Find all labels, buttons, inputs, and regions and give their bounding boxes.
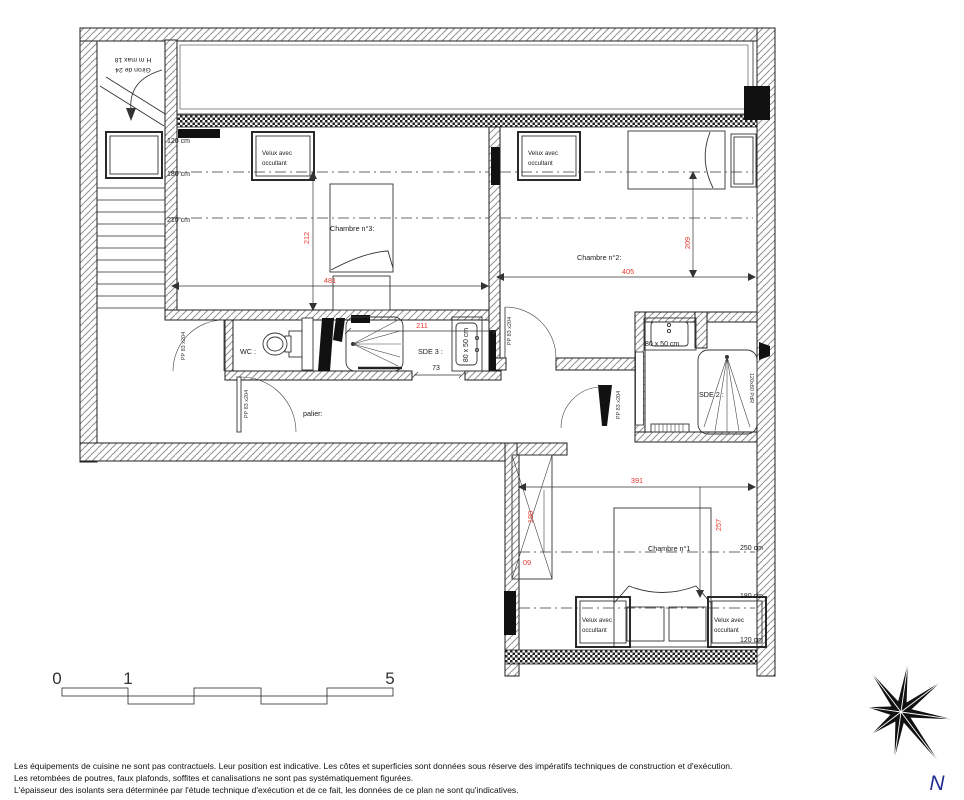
redacted-label-sde3 [351,315,370,323]
wall-sde2-basin-divider [695,312,707,348]
redacted-label [178,129,220,138]
stair-window [106,132,162,178]
compass-facets [867,664,952,763]
dim-closet-width: 60 [523,558,531,567]
room-label-bedroom2: Chambre n°2: [577,253,621,262]
stair-walk-line [131,70,162,110]
scale-tick-5: 5 [385,669,394,688]
door-label-vestibule: PP 83 x204 [181,332,187,360]
wc-toilet [263,331,302,357]
velux-label: Velux avec [262,150,292,157]
height-label-top-210: 210 cm [167,217,190,224]
dim-shower-door: 73 [432,365,440,372]
wall-wc-left [225,320,233,371]
stair-giron-label: Giron de 24 [115,66,151,73]
duct-bedroom1 [504,591,516,635]
room-label-bedroom1: Chambre n°1 [648,544,690,553]
velux-label: Velux avec [582,617,612,624]
floor-plan-page: Giron de 24 H m max 18 [0,0,964,800]
dim-bedroom3-height: 212 [302,232,311,244]
compass-rose: N [867,664,952,796]
scale-tick-1: 1 [123,669,132,688]
sde3-shower [346,317,403,371]
scale-bar: 0 1 5 [52,669,394,704]
room-label-sde2: SDE 2 : [699,390,724,399]
wall-insulated-bottom [505,650,757,664]
height-label-c1-120: 120 cm [740,637,763,644]
stair-walk-arrow [126,108,136,121]
compass-north-label: N [929,772,945,795]
basin-label-sde2: 80 x 50 cm [645,341,679,348]
height-label-c1-250: 250 cm [740,545,763,552]
velux-label: occultant [714,627,739,634]
height-label-top-180: 180 cm [167,171,190,178]
velux-bedroom2: Velux avec occultant [518,132,580,180]
sliding-door-sde3 [489,330,496,370]
stair-treads [97,188,165,308]
door-pocket-sde2 [636,352,644,425]
wall-bath-bottom-a [225,371,412,380]
bedroom1-bed [614,508,711,647]
door-label-landing: PP 83 x204 [244,390,250,418]
sliding-door-bedroom2 [491,147,500,185]
staircase: Giron de 24 H m max 18 [97,56,170,308]
footer-disclaimer: Les équipements de cuisine ne sont pas c… [14,761,732,795]
velux-label: occultant [262,160,287,167]
wall-outer-bottom-left [80,443,517,461]
sde2-towel-rail [651,424,689,432]
doors [173,307,612,432]
bedroom3-bed [330,184,393,310]
wall-outer-top [80,28,775,41]
wall-sde2-bottom [635,432,757,442]
floor-plan-drawing: Giron de 24 H m max 18 [0,0,964,800]
dim-bedroom1-height: 257 [714,519,723,531]
wall-bath-bottom-b [465,371,501,380]
velux-label: occultant [528,160,553,167]
roof-band [175,40,753,114]
room-label-sde3: SDE 3 : [418,347,443,356]
footer-line-3: L'épaisseur des isolants sera déterminée… [14,785,519,795]
height-label-c1-180: 180 cm [740,593,763,600]
door-label-bedroom2: PP 83 x204 [507,317,513,345]
velux-label: Velux avec [714,617,744,624]
chimney-block [744,86,770,120]
stair-text: Giron de 24 H m max 18 [114,56,151,73]
wall-closet-top [517,443,567,455]
footer-line-2: Les retombées de poutres, faux plafonds,… [14,773,413,783]
shower-label-sde2: 120x80 PdR [748,373,754,403]
velux-label: Velux avec [528,150,558,157]
dim-bedroom3-width: 481 [324,276,336,285]
wall-outer-left [80,28,97,462]
basin-label-sde3: 80 x 50 cm [463,328,470,362]
door-label-bedroom1: PP 83 x204 [616,391,622,419]
wall-bedroom2-bottom-b [556,358,636,370]
door-arc-bedroom1 [561,387,600,428]
velux-label: occultant [582,627,607,634]
dim-closet-height: 180 [526,511,535,523]
room-label-wc: WC : [240,347,256,356]
door-leaf-black-a [318,318,334,371]
bedroom2-bed [628,131,756,189]
dim-bedroom2-width: 405 [622,267,634,276]
stair-height-label: H m max 18 [114,56,151,63]
door-leaf-bedroom1 [598,385,612,426]
door-pocket-wc [302,318,313,370]
velux-bedroom3: Velux avec occultant [252,132,314,180]
room-label-landing: palier: [303,409,323,418]
stair-cut-line [100,77,170,126]
stair-window-inner [110,136,158,174]
door-leaf-landing [237,377,241,432]
dim-bedroom2-height: 209 [683,237,692,249]
footer-line-1: Les équipements de cuisine ne sont pas c… [14,761,732,771]
room-label-bedroom3: Chambre n°3: [330,224,374,233]
door-leaf-black-b [333,318,345,342]
dim-sde3-width: 211 [416,321,428,330]
height-label-top-120: 120 cm [167,138,190,145]
wall-insulated-top [177,115,757,127]
dim-bedroom1-width: 391 [631,476,643,485]
scale-tick-0: 0 [52,669,61,688]
